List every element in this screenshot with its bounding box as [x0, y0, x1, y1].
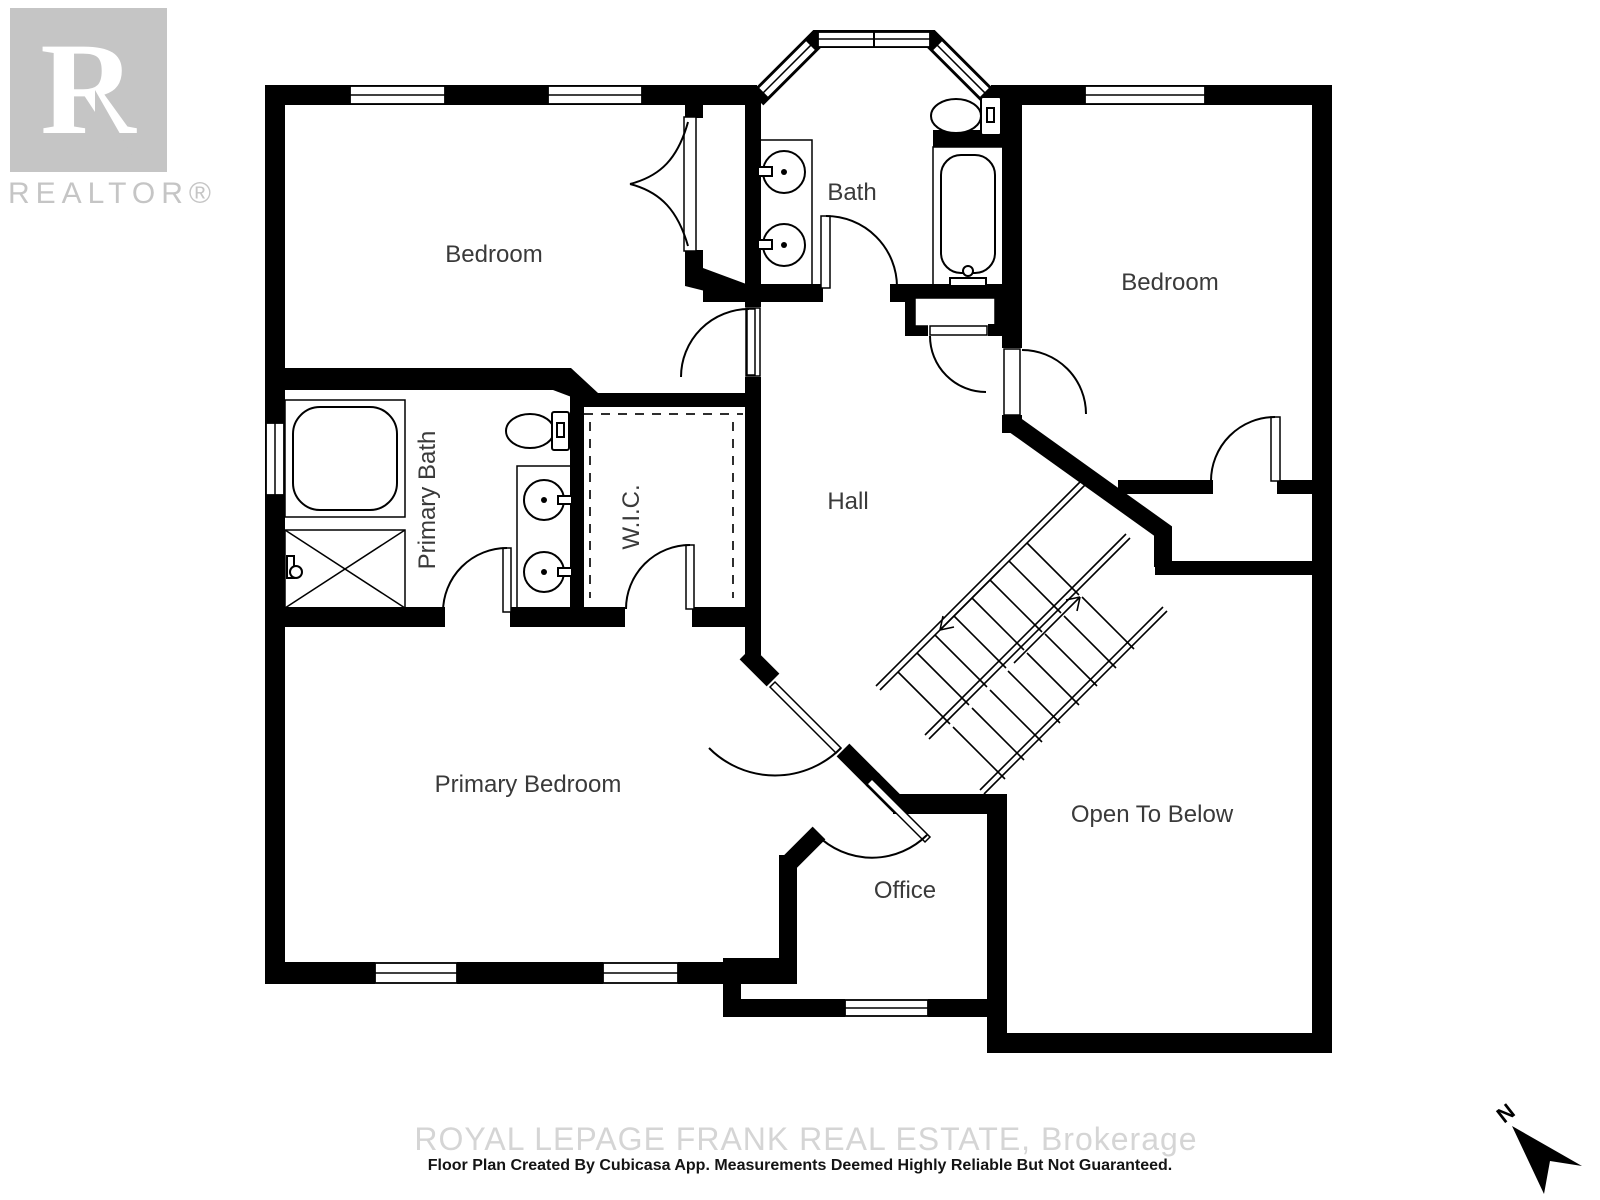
label-primary-bath: Primary Bath	[414, 431, 441, 570]
bathtub-icon	[933, 147, 1003, 287]
bifold-closet-doors-icon	[630, 117, 696, 251]
label-bath: Bath	[827, 179, 876, 206]
toilet-icon	[931, 97, 1001, 135]
wall-bottom-right	[987, 1033, 1332, 1053]
realtor-logo-word: REALTOR®	[8, 177, 217, 210]
label-primary-bedroom: Primary Bedroom	[435, 771, 622, 798]
label-bedroom-top-right: Bedroom	[1121, 269, 1218, 296]
wall-stair-diagonal	[1012, 423, 1163, 567]
label-bedroom-top-left: Bedroom	[445, 241, 542, 268]
wall-office-step-connector	[723, 958, 797, 984]
wall-bed2-closet-bottom	[1155, 561, 1332, 575]
label-hall: Hall	[827, 488, 868, 515]
bedroom-door-icon	[681, 308, 760, 377]
window-icon	[548, 86, 642, 104]
window-icon	[375, 963, 457, 983]
wall-bed2-bottom-right	[1277, 480, 1332, 494]
north-arrow-shape	[1512, 1126, 1582, 1194]
wall-diag-1	[746, 653, 773, 680]
closet-door-icon	[1211, 417, 1280, 481]
bath-door-icon	[821, 216, 897, 288]
corner-tub-icon	[285, 400, 405, 517]
wall-primary-bottom-2	[457, 962, 603, 984]
wall-top-left	[265, 85, 757, 105]
wall-office-bottom-left	[741, 999, 845, 1017]
wall-bath-bottom-left	[703, 284, 823, 302]
windows	[266, 31, 1205, 1016]
window-icon	[603, 963, 678, 983]
label-wic: W.I.C.	[618, 484, 645, 549]
brokerage-watermark: ROYAL LEPAGE FRANK REAL ESTATE, Brokerag…	[414, 1121, 1197, 1157]
wic-shelving	[584, 414, 743, 598]
wall-hall-left	[745, 403, 761, 655]
floor-plan-page: Bedroom Bath Bedroom Primary Bath W.I.C.…	[0, 0, 1600, 1200]
label-open-to-below: Open To Below	[1071, 801, 1234, 828]
wall-office-top	[893, 794, 1007, 814]
wall-wic-top	[580, 393, 761, 407]
office-door-icon	[817, 779, 930, 858]
bay-window-right-icon	[932, 40, 990, 98]
wall-office-bottom-right	[928, 999, 1007, 1017]
wall-bed2-bottom-left	[1118, 480, 1213, 494]
double-sink-vanity-icon	[517, 466, 572, 608]
floor-plan-canvas: Bedroom Bath Bedroom Primary Bath W.I.C.…	[0, 0, 1600, 1200]
primary-bath-door-icon	[443, 548, 511, 612]
wall-left	[265, 85, 285, 984]
window-icon	[350, 86, 445, 104]
shower-icon	[285, 530, 405, 608]
window-icon	[266, 423, 284, 495]
linen-closet-icon	[905, 288, 1005, 392]
window-icon	[845, 1000, 928, 1016]
north-label: N	[1492, 1098, 1520, 1127]
wall-pbath-bottom-2	[510, 607, 625, 627]
footer: ROYAL LEPAGE FRANK REAL ESTATE, Brokerag…	[414, 1121, 1197, 1174]
bay-window-top-icon	[818, 31, 930, 47]
bay-window-left-icon	[758, 40, 816, 98]
disclaimer-text: Floor Plan Created By Cubicasa App. Meas…	[428, 1157, 1172, 1174]
primary-bedroom-door-icon	[709, 682, 841, 775]
realtor-logo: R REALTOR®	[8, 8, 217, 210]
bedroom-door-icon	[1004, 349, 1086, 415]
double-sink-vanity-icon	[758, 140, 812, 290]
wall-b1-right-a	[685, 105, 703, 118]
label-office: Office	[874, 877, 936, 904]
wall-diag-2	[843, 750, 874, 781]
wall-b1-bottom	[265, 368, 553, 390]
toilet-icon	[506, 412, 569, 450]
window-icon	[1085, 86, 1205, 104]
wic-door-icon	[626, 545, 694, 609]
staircase	[876, 481, 1167, 794]
north-arrow-icon: N	[1492, 1098, 1582, 1194]
wall-pbath-bottom-1	[265, 607, 445, 627]
